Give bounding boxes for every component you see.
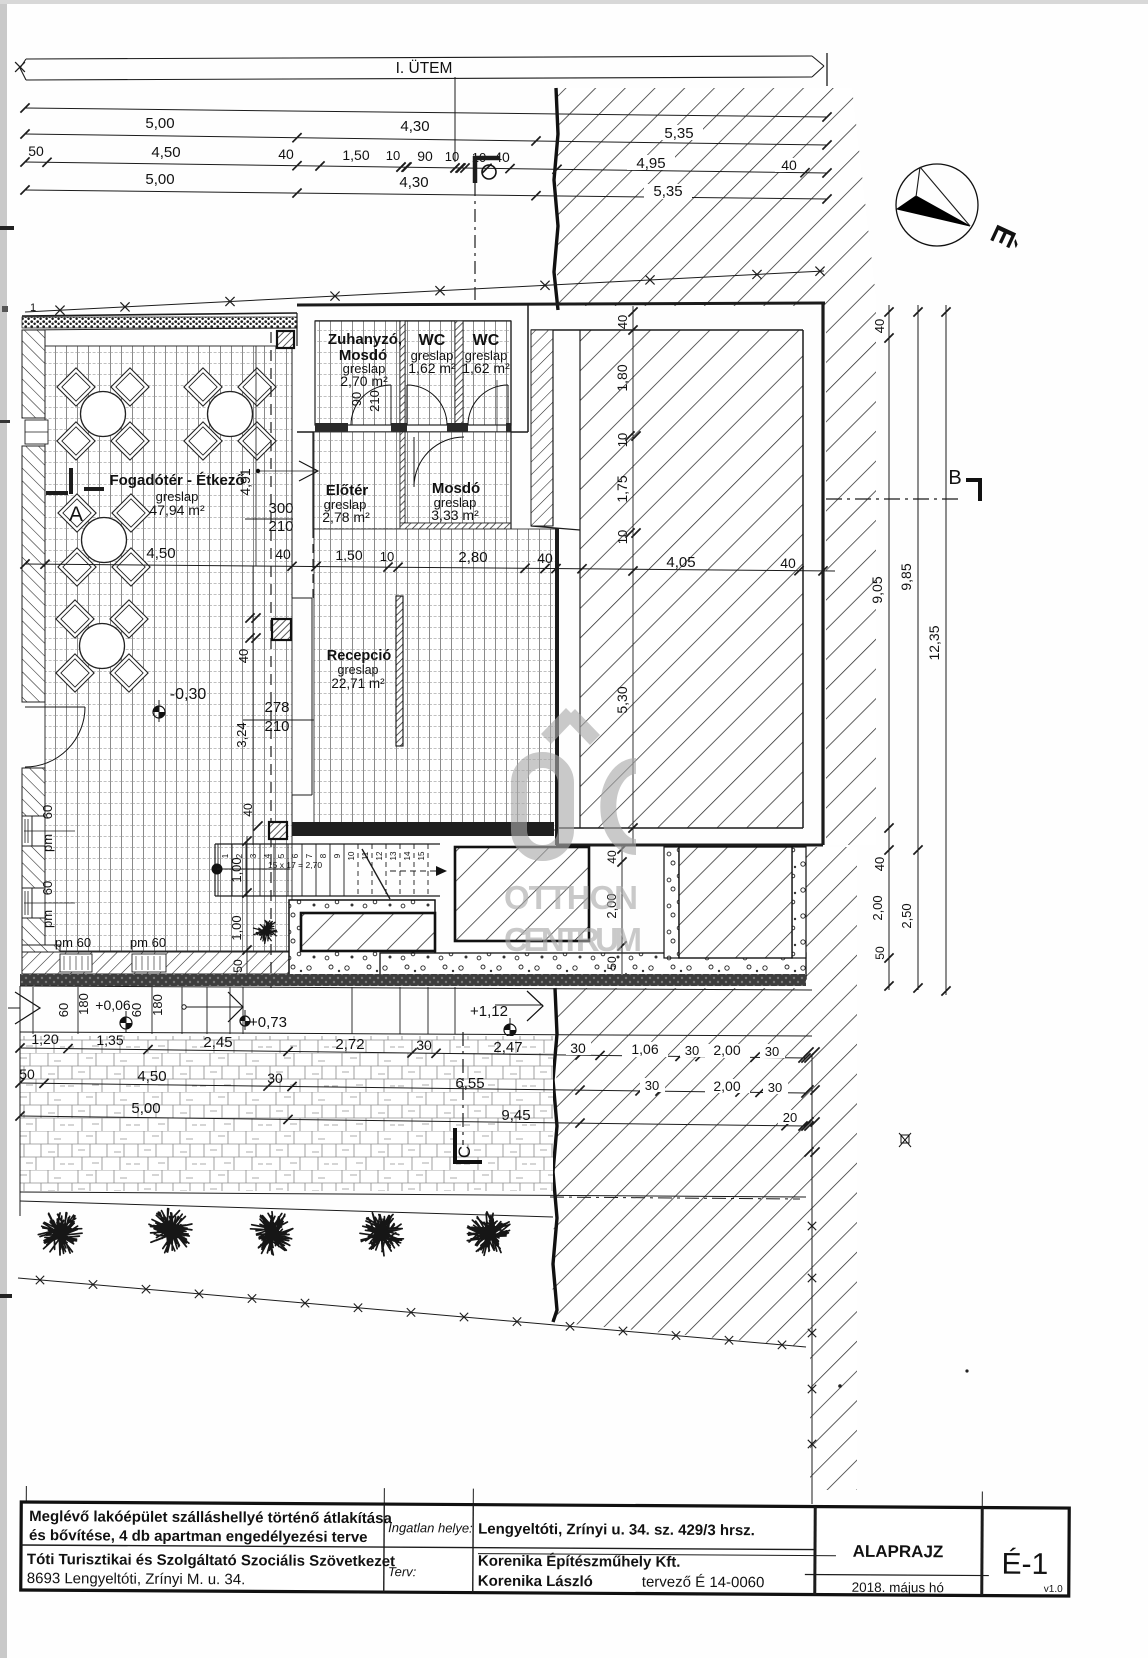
svg-text:180: 180 [76,993,91,1015]
svg-text:50: 50 [873,946,887,960]
svg-text:30: 30 [267,1070,283,1086]
svg-text:10: 10 [386,148,400,163]
svg-text:15 x 17 = 2,70: 15 x 17 = 2,70 [268,860,322,870]
svg-text:10: 10 [347,851,356,860]
svg-text:40: 40 [537,550,553,566]
svg-text:WC: WC [473,332,500,349]
svg-text:greslap: greslap [338,663,379,677]
svg-text:OTTHON: OTTHON [504,879,638,916]
svg-text:40: 40 [236,649,251,663]
svg-text:4,95: 4,95 [636,155,665,172]
svg-text:6,55: 6,55 [455,1075,484,1092]
svg-text:Korenika Építészműhely Kft.: Korenika Építészműhely Kft. [478,1553,681,1571]
svg-text:10: 10 [380,549,394,564]
svg-text:10: 10 [615,530,630,544]
svg-text:Zuhanyzó,: Zuhanyzó, [328,331,402,348]
svg-text:1,00: 1,00 [229,857,244,882]
svg-text:9,05: 9,05 [869,576,885,603]
svg-text:2,72: 2,72 [335,1036,364,1053]
svg-text:9,45: 9,45 [501,1107,530,1124]
svg-text:1,80: 1,80 [614,364,630,391]
svg-text:90: 90 [417,148,433,164]
svg-text:Fogadótér - Étkező: Fogadótér - Étkező [109,472,244,489]
svg-text:2,47: 2,47 [493,1039,522,1056]
svg-text:2,00: 2,00 [870,895,885,920]
svg-text:pm 60: pm 60 [55,935,91,950]
svg-text:pm: pm [40,910,55,928]
svg-text:ALAPRAJZ: ALAPRAJZ [853,1542,944,1562]
svg-text:Tóti Turisztikai és Szolgáltat: Tóti Turisztikai és Szolgáltató Szociáli… [27,1551,395,1570]
svg-text:Lengyeltóti, Zrínyi u. 34. sz.: Lengyeltóti, Zrínyi u. 34. sz. 429/3 hrs… [478,1521,755,1540]
svg-text:50: 50 [28,143,44,159]
svg-text:60: 60 [40,881,55,895]
svg-text:5,30: 5,30 [614,686,630,713]
svg-text:1,50: 1,50 [342,147,369,163]
svg-text:4: 4 [263,853,272,858]
svg-text:pm 60: pm 60 [130,935,166,950]
svg-text:30: 30 [645,1078,659,1093]
svg-text:5,00: 5,00 [145,115,174,132]
svg-text:2,00: 2,00 [713,1042,740,1058]
svg-text:Meglévő lakóépület szálláshell: Meglévő lakóépület szálláshellyé történő… [29,1508,392,1527]
svg-text:30: 30 [570,1040,586,1056]
svg-text:1,20: 1,20 [31,1031,58,1047]
svg-text:1,35: 1,35 [96,1032,123,1048]
svg-text:5,35: 5,35 [653,183,682,200]
svg-text:5: 5 [277,853,286,858]
svg-text:4,91: 4,91 [237,468,253,495]
svg-text:4,50: 4,50 [151,144,180,161]
svg-text:50: 50 [231,959,245,973]
svg-text:B: B [948,467,961,489]
svg-text:1,75: 1,75 [614,475,630,502]
svg-text:2,00: 2,00 [713,1078,740,1094]
svg-text:210: 210 [268,518,293,535]
svg-text:2,50: 2,50 [899,903,914,928]
svg-text:1,00: 1,00 [229,915,244,940]
svg-text:1,62 m²: 1,62 m² [408,360,456,376]
svg-text:8: 8 [319,853,328,858]
svg-text:9,85: 9,85 [898,563,914,590]
svg-text:+0,73: +0,73 [249,1014,287,1031]
svg-text:14: 14 [403,851,412,860]
svg-text:5,00: 5,00 [131,1100,160,1117]
svg-text:Ingatlan helye:: Ingatlan helye: [388,1520,473,1535]
svg-text:60: 60 [129,1003,144,1017]
svg-text:1,06: 1,06 [631,1041,658,1057]
svg-text:3,24: 3,24 [234,722,249,747]
svg-text:5,00: 5,00 [145,171,174,188]
svg-text:WC: WC [419,332,446,349]
svg-text:15: 15 [417,851,426,860]
svg-text:40: 40 [872,319,887,333]
svg-text:1,50: 1,50 [335,547,362,563]
svg-text:50: 50 [19,1066,35,1082]
svg-text:22,71 m²: 22,71 m² [331,676,385,691]
svg-text:8693 Lengyeltóti, Zrínyi M. u.: 8693 Lengyeltóti, Zrínyi M. u. 34. [27,1570,246,1588]
svg-text:2,80: 2,80 [458,549,487,566]
svg-text:2,45: 2,45 [203,1034,232,1051]
svg-text:2018. május hó: 2018. május hó [852,1580,944,1596]
svg-text:9: 9 [333,853,342,858]
svg-text:4,50: 4,50 [137,1068,166,1085]
svg-text:12,35: 12,35 [926,625,942,660]
svg-text:10: 10 [615,433,630,447]
svg-text:50: 50 [605,956,619,970]
svg-text:3,33 m²: 3,33 m² [431,507,479,523]
svg-text:Terv:: Terv: [388,1564,417,1579]
svg-text:40: 40 [278,146,294,162]
svg-text:2,70 m²: 2,70 m² [340,373,388,389]
svg-text:40: 40 [605,850,619,864]
svg-text:12: 12 [375,851,384,860]
svg-text:40: 40 [241,803,255,817]
svg-text:30: 30 [768,1080,782,1095]
svg-text:20: 20 [783,1110,797,1125]
svg-text:pm: pm [40,834,55,852]
svg-text:7: 7 [305,853,314,858]
svg-text:40: 40 [872,857,887,871]
svg-text:A: A [69,503,83,526]
svg-text:É-1: É-1 [1001,1548,1048,1581]
svg-text:60: 60 [56,1003,71,1017]
svg-text:10: 10 [445,149,459,164]
svg-text:4,30: 4,30 [399,174,428,191]
svg-text:13: 13 [389,851,398,860]
svg-text:I. ÜTEM: I. ÜTEM [396,59,453,77]
svg-text:2,78 m²: 2,78 m² [322,509,370,525]
svg-text:40: 40 [275,546,291,562]
svg-text:210: 210 [367,390,382,412]
svg-text:40: 40 [781,157,797,173]
svg-text:40: 40 [780,555,796,571]
svg-text:180: 180 [150,994,165,1016]
svg-text:30: 30 [685,1043,699,1058]
svg-text:4,05: 4,05 [666,554,695,571]
svg-text:40: 40 [615,315,630,329]
svg-text:+0,06: +0,06 [95,997,131,1013]
svg-text:60: 60 [40,805,55,819]
svg-text:C: C [455,1146,474,1158]
svg-text:+1,12: +1,12 [470,1003,508,1020]
svg-text:30: 30 [416,1037,432,1053]
svg-text:30: 30 [765,1044,779,1059]
svg-text:210: 210 [264,718,289,735]
svg-text:4,30: 4,30 [400,118,429,135]
svg-text:1,62 m²: 1,62 m² [462,360,510,376]
svg-text:tervező É 14-0060: tervező É 14-0060 [642,1574,765,1592]
svg-text:90: 90 [349,392,364,406]
svg-text:278: 278 [264,699,289,716]
svg-text:és bővítése, 4 db apartman eng: és bővítése, 4 db apartman engedélyezési… [29,1527,368,1546]
svg-text:-0,30: -0,30 [170,686,207,703]
svg-text:Recepció: Recepció [327,648,392,664]
svg-text:300: 300 [268,500,293,517]
svg-text:v1.0: v1.0 [1044,1584,1063,1595]
svg-text:Korenika László: Korenika László [478,1573,593,1591]
svg-text:4,50: 4,50 [146,545,175,562]
svg-text:CENTRUM: CENTRUM [504,921,642,958]
svg-text:6: 6 [291,853,300,858]
svg-text:3: 3 [249,853,258,858]
svg-text:47,94 m²: 47,94 m² [149,502,205,518]
svg-text:5,35: 5,35 [664,125,693,142]
